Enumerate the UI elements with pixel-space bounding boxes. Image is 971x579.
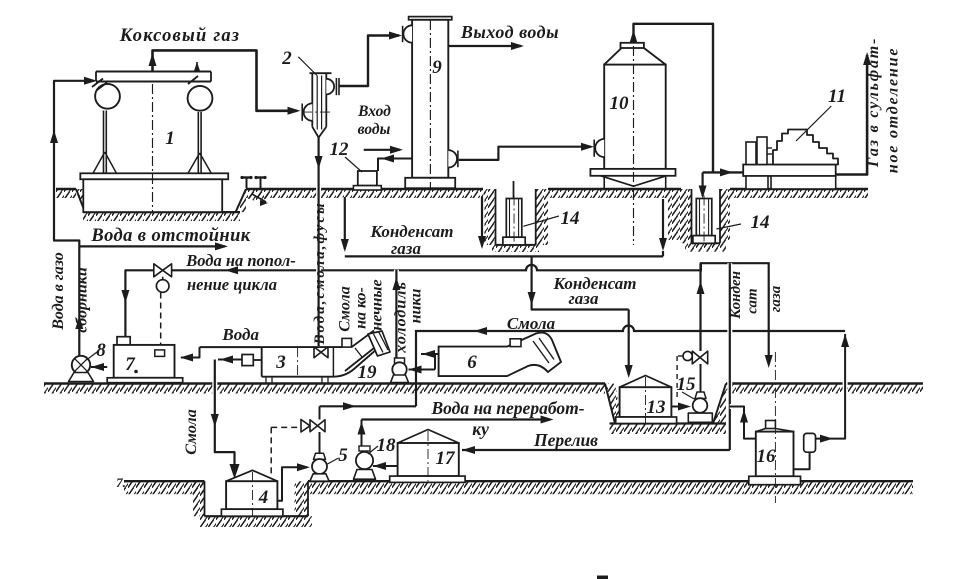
svg-text:Выход воды: Выход воды [460, 22, 559, 42]
svg-text:газа: газа [768, 285, 784, 312]
svg-text:Коксовый газ: Коксовый газ [119, 26, 240, 46]
svg-text:ники: ники [408, 289, 425, 324]
svg-text:Вода,смола,фусы: Вода,смола,фусы [312, 201, 328, 345]
svg-text:Смола: Смола [337, 286, 354, 331]
svg-text:18: 18 [377, 435, 397, 456]
svg-text:нение цикла: нение цикла [187, 275, 277, 294]
svg-text:10: 10 [610, 93, 630, 114]
svg-text:Смола: Смола [507, 314, 556, 333]
svg-text:11: 11 [828, 86, 846, 107]
svg-text:нечные: нечные [369, 279, 386, 330]
svg-text:12: 12 [330, 139, 350, 160]
svg-text:ное отделение: ное отделение [885, 47, 902, 173]
svg-text:Перелив: Перелив [533, 430, 598, 450]
svg-text:14: 14 [751, 212, 770, 233]
svg-text:газа: газа [569, 289, 599, 308]
svg-text:Конден: Конден [728, 271, 744, 320]
svg-text:2: 2 [281, 48, 292, 69]
svg-text:7: 7 [125, 354, 136, 375]
svg-text:ку: ку [472, 419, 489, 439]
svg-text:Газ в сульфат-: Газ в сульфат- [865, 37, 882, 168]
svg-text:16: 16 [757, 446, 777, 467]
svg-text:Вода в отстойник: Вода в отстойник [90, 226, 250, 246]
svg-text:сат: сат [745, 288, 761, 313]
svg-text:17: 17 [436, 448, 457, 469]
svg-text:8: 8 [96, 340, 106, 361]
svg-text:7.: 7. [116, 475, 126, 490]
svg-text:Вода в газо: Вода в газо [50, 252, 67, 330]
svg-text:Вода: Вода [221, 325, 259, 344]
svg-text:Смола: Смола [183, 409, 200, 454]
svg-text:на ко-: на ко- [353, 287, 370, 329]
svg-text:4: 4 [258, 487, 269, 508]
svg-text:3: 3 [275, 352, 286, 373]
svg-text:сборники: сборники [74, 267, 91, 333]
svg-text:14: 14 [561, 208, 580, 229]
svg-text:Вход: Вход [357, 103, 391, 120]
svg-text:13: 13 [647, 397, 666, 418]
svg-text:газа: газа [391, 239, 421, 258]
svg-text:15: 15 [677, 374, 697, 395]
svg-text:Вода на попол-: Вода на попол- [185, 251, 296, 270]
svg-text:5: 5 [338, 445, 348, 466]
svg-text:6: 6 [467, 352, 477, 373]
svg-text:1: 1 [165, 128, 175, 149]
svg-text:воды: воды [358, 121, 391, 138]
svg-text:19: 19 [358, 362, 378, 383]
svg-text:9: 9 [432, 57, 442, 78]
svg-text:Вода на переработ-: Вода на переработ- [430, 398, 584, 418]
